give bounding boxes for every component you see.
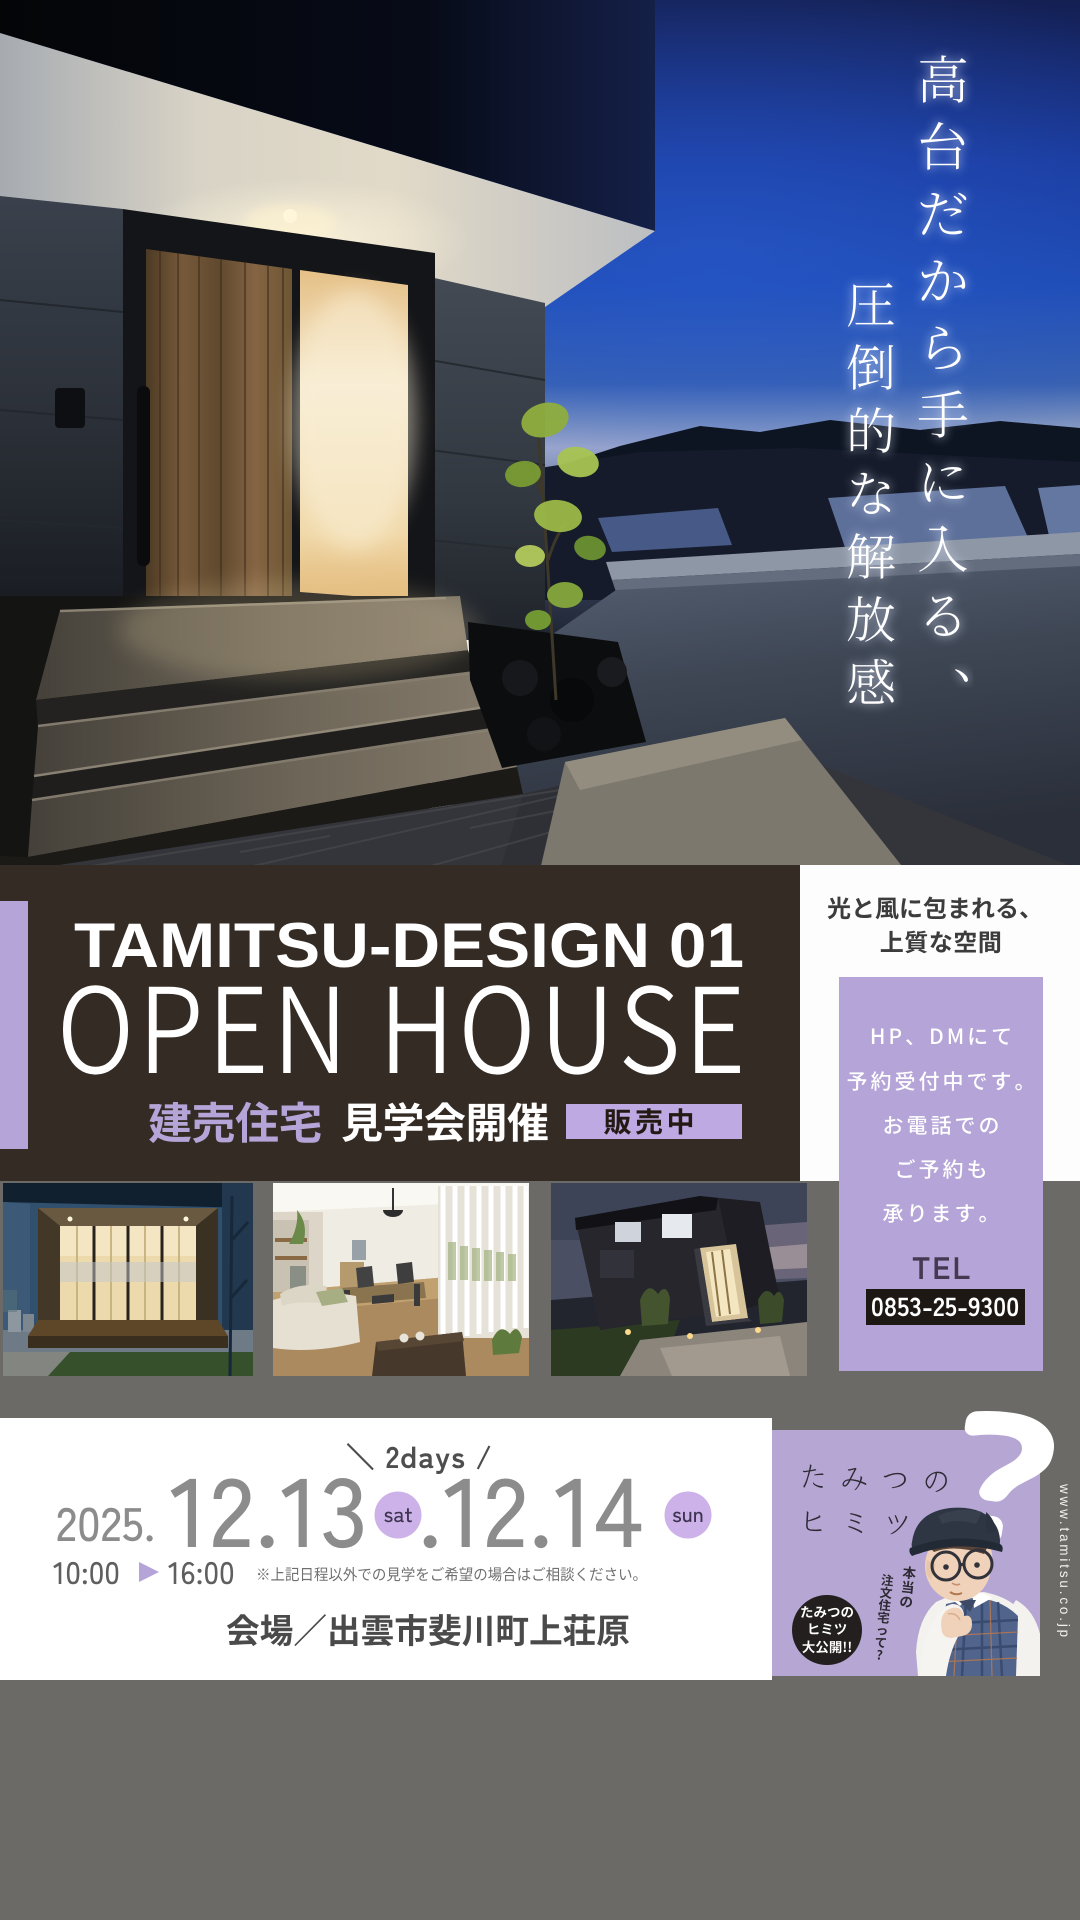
svg-text:www.tamitsu.co.jp: www.tamitsu.co.jp: [1057, 1483, 1073, 1640]
svg-text:TAMITSU-DESIGN 01: TAMITSU-DESIGN 01: [74, 911, 744, 981]
